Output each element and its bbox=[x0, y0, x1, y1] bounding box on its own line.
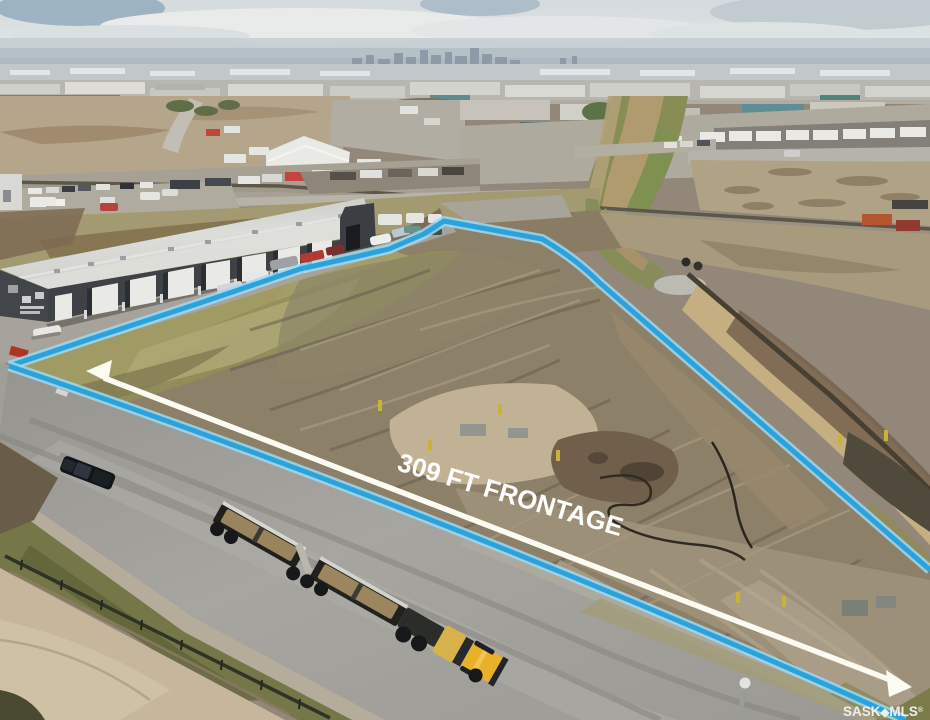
svg-text:SASK◆MLS®: SASK◆MLS® bbox=[843, 704, 924, 719]
